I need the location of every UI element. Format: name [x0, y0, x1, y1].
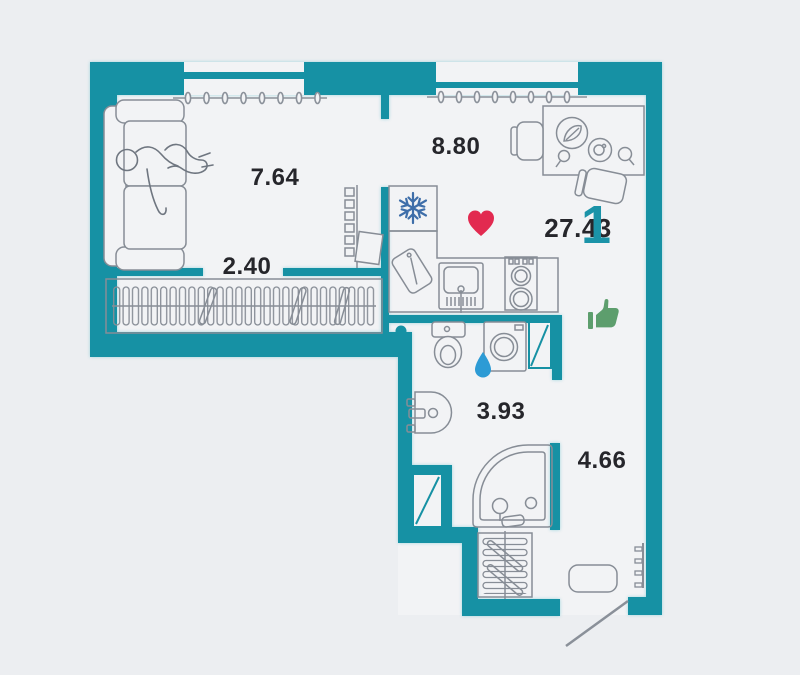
wall-wardrobe-right — [283, 268, 387, 276]
tv — [355, 231, 383, 264]
fridge — [389, 186, 437, 231]
wall-right — [646, 62, 662, 615]
washing-machine — [484, 322, 526, 371]
rooms-count-label: 1 — [581, 195, 611, 255]
wall-bathroom-connector — [380, 338, 412, 353]
wall-hall-step — [462, 543, 478, 605]
bathroom-area-label: 3.93 — [477, 398, 526, 425]
kitchen-area-label: 8.80 — [432, 133, 481, 160]
riser-dot — [396, 326, 407, 337]
wall-entry-jamb — [628, 597, 662, 615]
window-right-glass — [436, 82, 578, 88]
bathroom-door-upper — [529, 322, 551, 368]
toilet — [432, 322, 465, 368]
wall-living-bottom — [90, 332, 412, 357]
floor-plan-svg: 7.64 2.40 8.80 3.93 4.66 27.43 1 — [0, 0, 800, 675]
living-room-area-label: 7.64 — [251, 164, 300, 191]
wall-doorframe-right — [442, 465, 452, 530]
wardrobe-area-label: 2.40 — [223, 253, 272, 280]
desk-chair-left — [511, 122, 543, 160]
window-left-glass — [184, 72, 304, 79]
window-right — [436, 62, 578, 95]
wardrobe-hall — [478, 531, 532, 599]
wall-kitchen-stub — [381, 93, 389, 119]
wardrobe-living — [106, 279, 382, 333]
wall-bathroom-left — [398, 352, 412, 530]
wall-bathroom-right-upper — [552, 315, 562, 380]
hallway-area-label: 4.66 — [578, 447, 627, 474]
wall-bathroom-bottom — [398, 527, 478, 543]
bathroom-door-lower — [413, 474, 442, 527]
